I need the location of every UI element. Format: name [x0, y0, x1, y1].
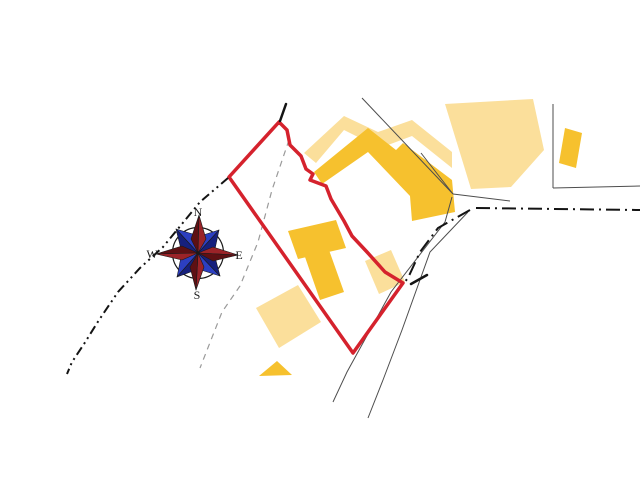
- compass-label-n: N: [194, 205, 203, 219]
- compass-center-dot: [196, 251, 199, 254]
- compass-label-w: W: [146, 247, 158, 261]
- cadastral-map[interactable]: NSWE: [0, 0, 640, 480]
- compass-label-s: S: [194, 288, 201, 302]
- map-canvas: NSWE: [0, 0, 640, 480]
- compass-label-e: E: [235, 248, 242, 262]
